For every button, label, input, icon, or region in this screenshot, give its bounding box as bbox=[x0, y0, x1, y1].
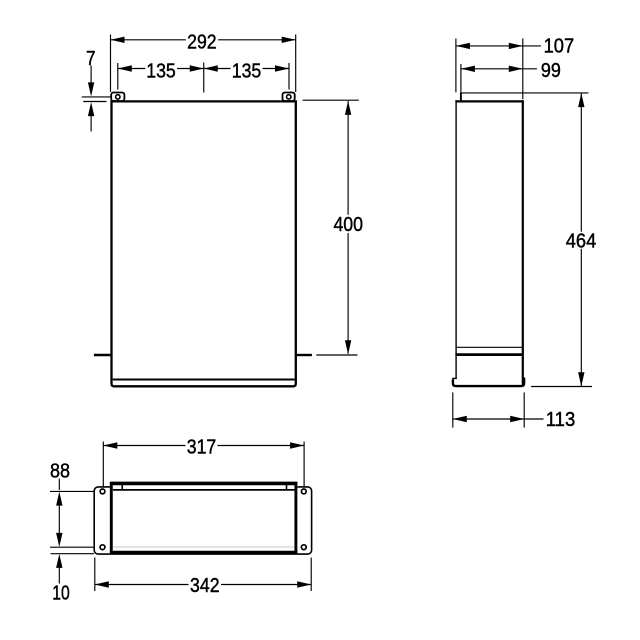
svg-text:135: 135 bbox=[146, 59, 176, 82]
svg-text:317: 317 bbox=[187, 435, 217, 458]
svg-text:292: 292 bbox=[187, 31, 217, 54]
svg-text:135: 135 bbox=[232, 59, 262, 82]
svg-text:342: 342 bbox=[190, 574, 220, 597]
svg-text:107: 107 bbox=[544, 35, 575, 58]
svg-text:88: 88 bbox=[50, 459, 70, 482]
svg-text:7: 7 bbox=[86, 47, 96, 70]
svg-text:113: 113 bbox=[546, 408, 576, 431]
svg-text:99: 99 bbox=[541, 59, 561, 82]
svg-text:400: 400 bbox=[333, 213, 363, 236]
svg-text:464: 464 bbox=[566, 230, 597, 253]
svg-text:10: 10 bbox=[52, 582, 70, 605]
